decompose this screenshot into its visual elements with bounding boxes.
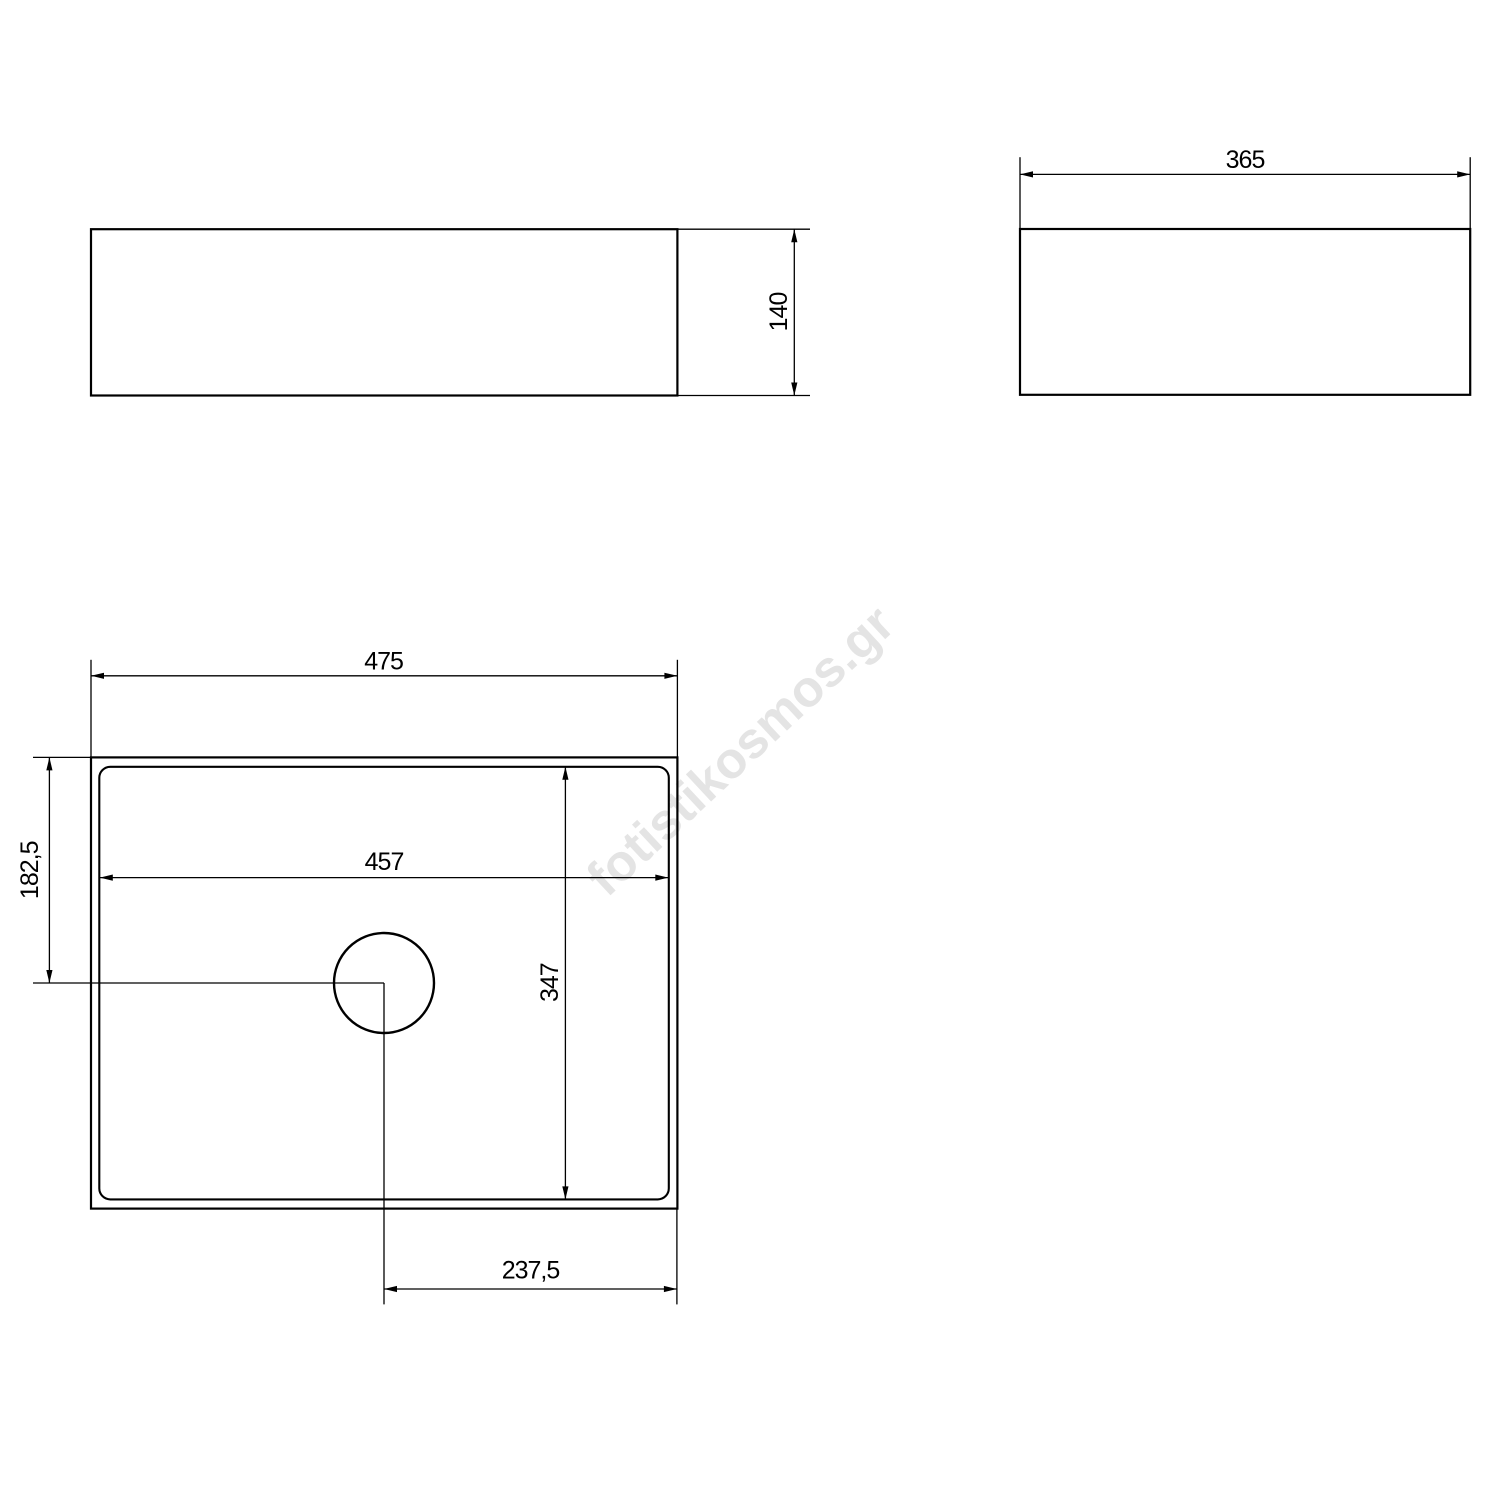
svg-text:140: 140 — [765, 293, 793, 332]
svg-text:365: 365 — [1226, 146, 1265, 174]
svg-text:237,5: 237,5 — [502, 1256, 560, 1284]
svg-text:347: 347 — [536, 963, 564, 1002]
svg-text:fotistikosmos.gr: fotistikosmos.gr — [576, 594, 905, 906]
svg-text:475: 475 — [364, 647, 403, 675]
svg-text:457: 457 — [365, 848, 404, 876]
svg-text:182,5: 182,5 — [16, 841, 44, 899]
